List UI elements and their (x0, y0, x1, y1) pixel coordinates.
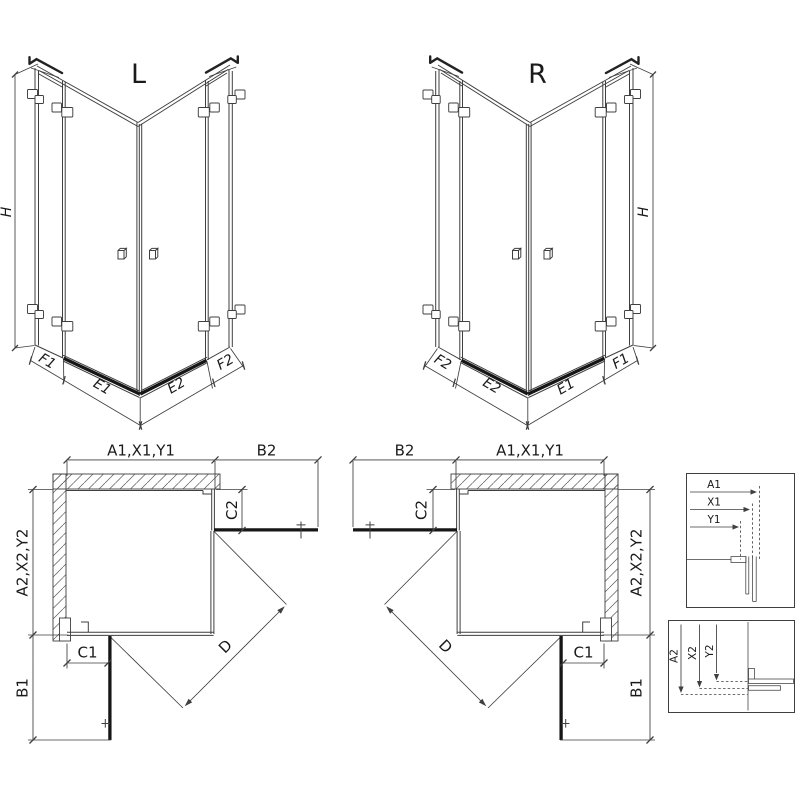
dim-label-d: D (215, 636, 236, 657)
dim-label-c1: C1 (77, 644, 97, 662)
wall-side-hatched (605, 474, 618, 641)
wall-top-hatched (53, 474, 220, 489)
hinge-icon (449, 103, 616, 331)
detail-box-depths: A2 X2 Y2 (669, 621, 795, 713)
door-swing-lines (385, 531, 562, 708)
dim-label-b2: B2 (395, 442, 415, 460)
view-label-l: L (131, 59, 146, 90)
dim-label-width: A1,X1,Y1 (496, 442, 564, 460)
dim-label-a1: A1 (707, 479, 721, 491)
dim-label-depth: A2,X2,Y2 (628, 529, 646, 597)
wall-bracket-icon (423, 90, 641, 319)
reference-dashed-lines (741, 486, 760, 560)
arrowhead (697, 681, 702, 688)
dim-label-c1: C1 (573, 644, 593, 662)
glass-panels (66, 489, 214, 635)
door-knob-icon (513, 248, 553, 259)
dim-label-f2: F2 (431, 351, 454, 373)
wall-top-hatched (451, 474, 618, 489)
dim-label-depth: A2,X2,Y2 (14, 529, 32, 597)
wall-profile-foot (601, 618, 612, 641)
wall-side-hatched (53, 474, 66, 641)
iso-view-left: L H F1 E1 E2 F2 (0, 56, 245, 429)
dim-label-f2: F2 (214, 351, 237, 373)
dim-label-c2: C2 (223, 500, 241, 520)
dimension-lines (424, 64, 653, 428)
view-label-r: R (528, 59, 547, 90)
door-handle-icon (366, 522, 570, 728)
dim-label-x2: X2 (687, 646, 699, 660)
dim-label-width: A1,X1,Y1 (107, 442, 175, 460)
profile-section (731, 557, 756, 602)
arrowhead (751, 489, 758, 494)
dim-label-f1: F1 (36, 350, 59, 372)
detail-frame (669, 621, 795, 713)
technical-drawing-sheet: L H F1 E1 E2 F2 R H F1 E1 E2 F2 (0, 0, 800, 800)
dim-label-y2: Y2 (704, 644, 716, 658)
glass-panels (457, 489, 605, 635)
dim-label-b1: B1 (14, 678, 32, 698)
wall-profile-foot (60, 618, 71, 641)
iso-view-right: R H F1 E1 E2 F2 (423, 56, 656, 429)
dim-label-a2: A2 (669, 649, 681, 663)
door-knob-icon (118, 248, 158, 259)
plan-view-right: B2 A1,X1,Y1 C2 A2,X2,Y2 C1 B1 D (350, 442, 656, 744)
arrowhead (678, 687, 683, 694)
drawing-svg: L H F1 E1 E2 F2 R H F1 E1 E2 F2 (0, 0, 800, 800)
arrowhead (714, 674, 719, 681)
dim-label-y1: Y1 (706, 514, 720, 526)
profile-section (748, 622, 794, 711)
arrowhead (733, 524, 740, 529)
dim-label-b1: B1 (628, 678, 646, 698)
arrowhead (744, 507, 751, 512)
dim-label-h: H (636, 206, 652, 217)
dim-label-b2: B2 (257, 442, 277, 460)
dim-label-c2: C2 (413, 500, 431, 520)
door-swing-lines (110, 531, 287, 708)
dimension-lines (15, 64, 244, 428)
detail-box-widths: A1 X1 Y1 (687, 474, 795, 608)
dim-label-f1: F1 (610, 350, 633, 372)
wall-bracket-icon (28, 90, 246, 319)
plan-view-left: A1,X1,Y1 B2 C2 A2,X2,Y2 C1 B1 D (14, 442, 322, 744)
door-handle-icon (102, 522, 306, 728)
dim-label-h: H (0, 206, 15, 217)
hinge-icon (52, 103, 219, 331)
dim-label-d: D (435, 636, 456, 657)
dim-label-x1: X1 (707, 497, 721, 509)
reference-dashed-lines (681, 682, 748, 695)
